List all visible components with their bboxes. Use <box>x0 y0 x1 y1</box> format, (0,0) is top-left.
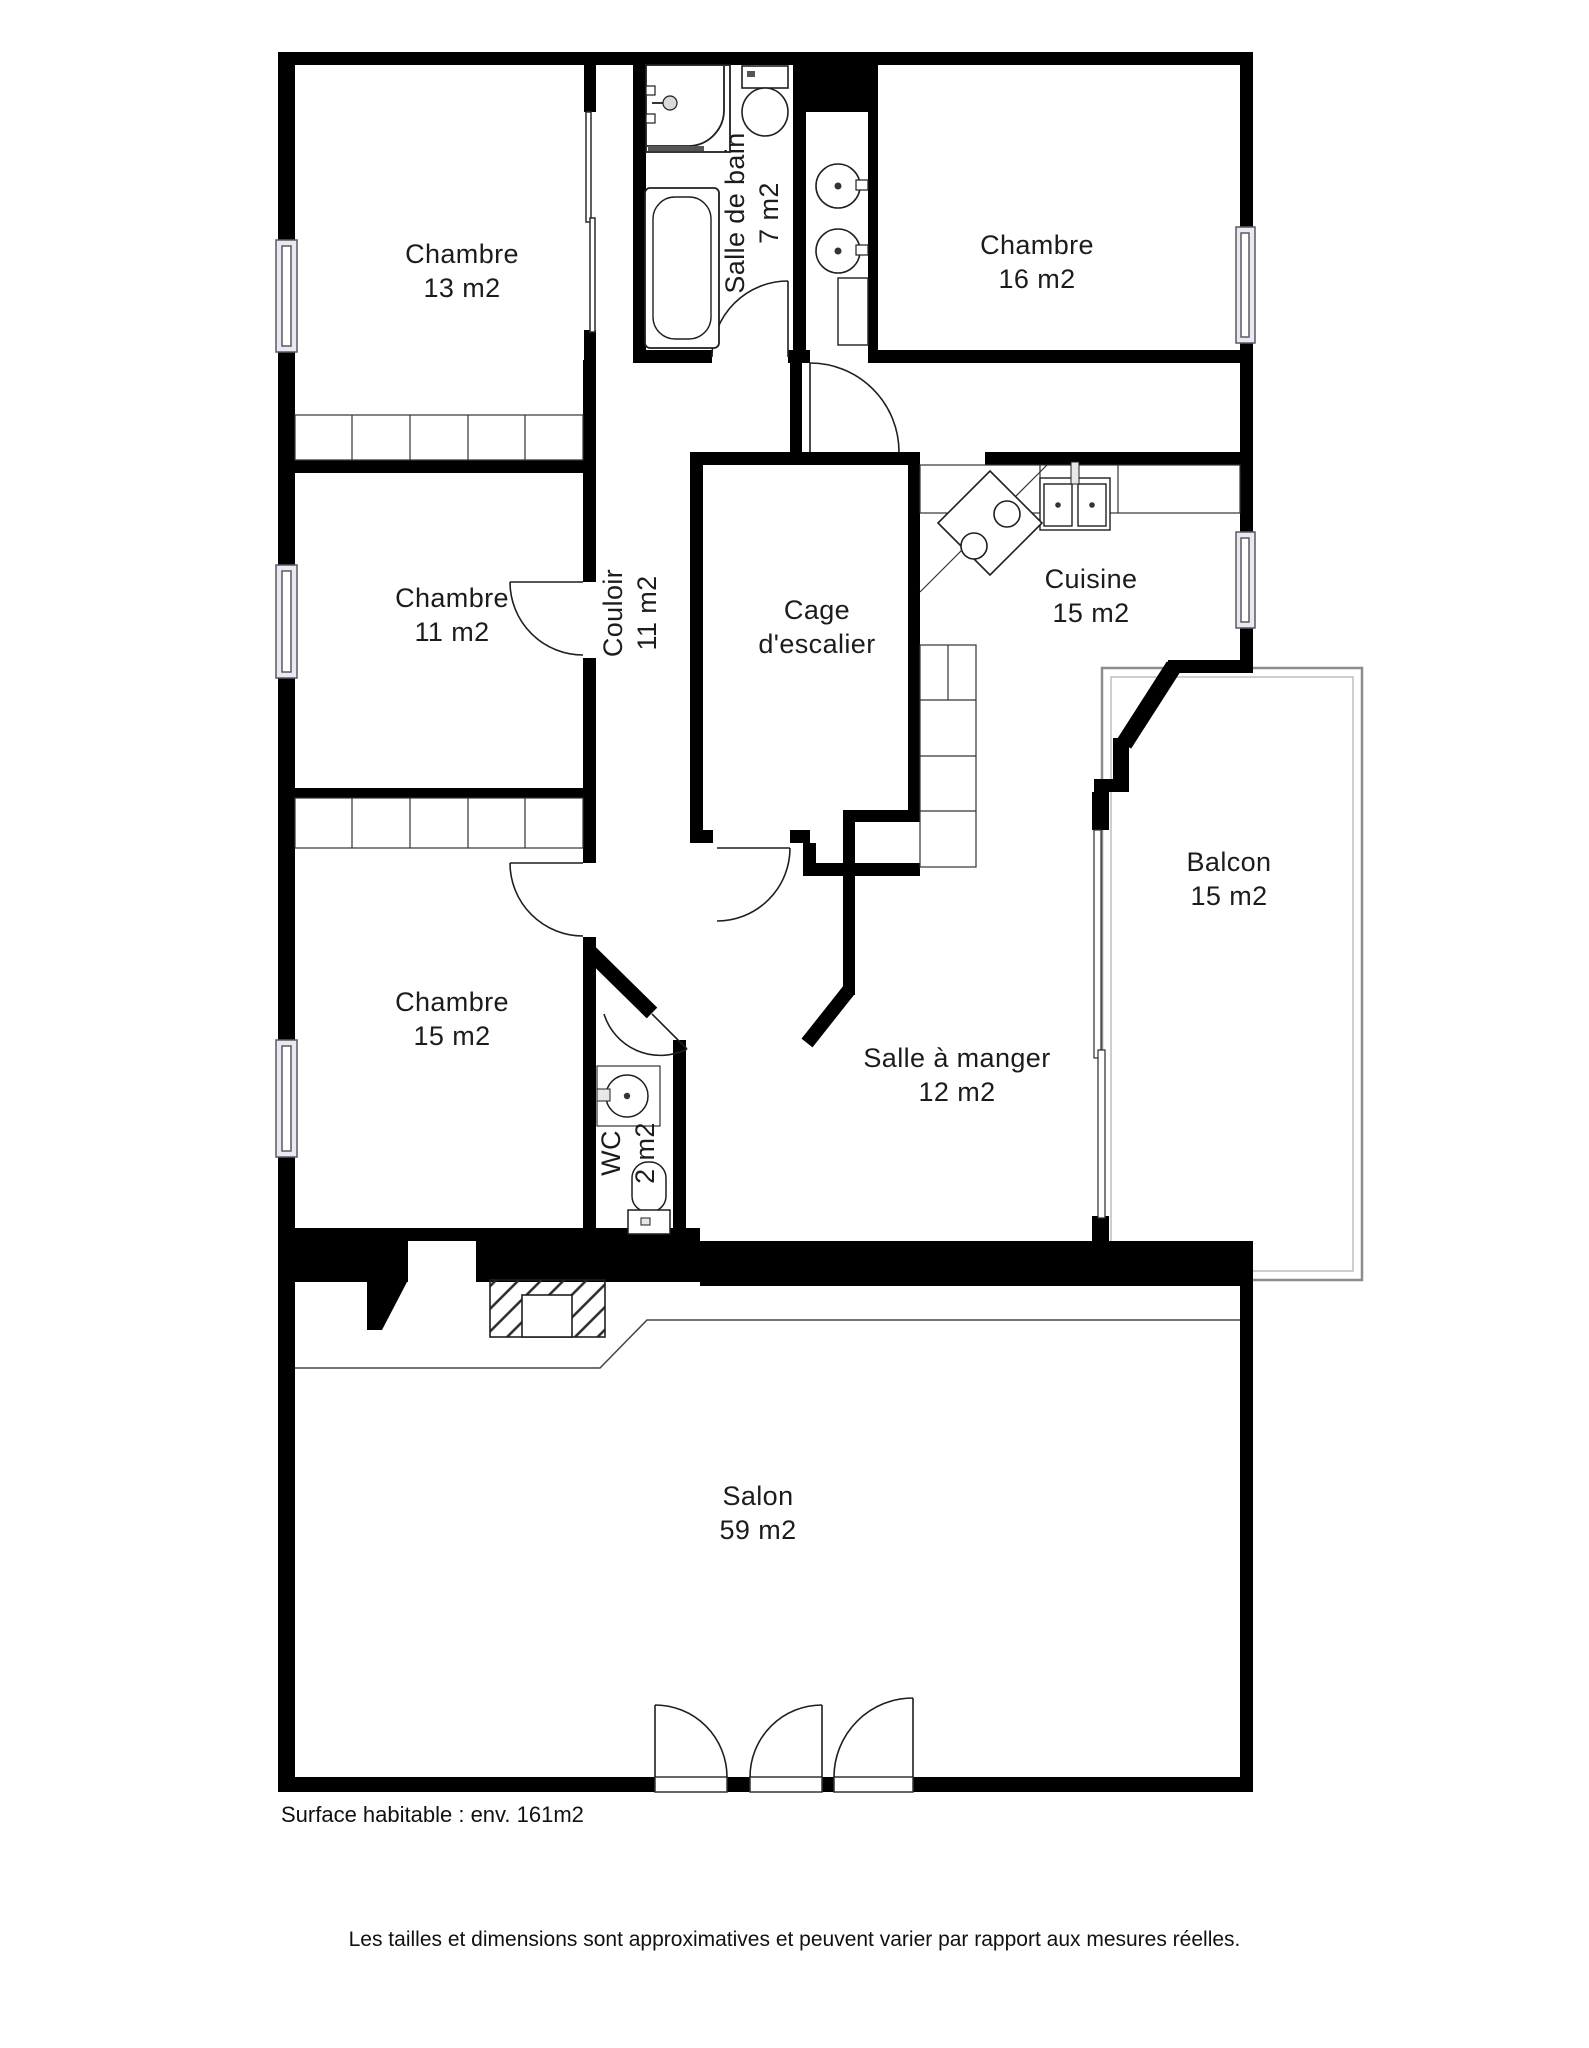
wall-cage-bottom-a <box>690 830 713 843</box>
wall-bathroom-bottom-a <box>646 350 712 363</box>
wall-cage-step-h <box>816 863 920 876</box>
wall-cage-left <box>690 452 703 843</box>
wall-bathroom-bottom-b <box>788 350 810 363</box>
door-chambre15 <box>510 863 583 936</box>
wall-chambre16-bottom <box>878 350 1240 363</box>
room-name: Chambre <box>405 237 519 271</box>
wall-bathroom-left <box>633 52 646 363</box>
door-basin-room <box>810 363 899 452</box>
room-label-chambre-13: Chambre 13 m2 <box>405 237 519 305</box>
wall-chambre11-right-b <box>583 658 596 788</box>
window-chambre13 <box>276 240 297 352</box>
surface-note: Surface habitable : env. 161m2 <box>281 1802 584 1828</box>
room-label-salon: Salon 59 m2 <box>719 1479 796 1547</box>
room-name: Chambre <box>395 581 509 615</box>
room-area: 16 m2 <box>980 262 1094 296</box>
wall-chambre13-right <box>583 360 596 460</box>
door-salon-french-1 <box>655 1705 727 1777</box>
room-area: 7 m2 <box>752 132 786 293</box>
kitchen-cabinets <box>920 645 976 867</box>
closet-chambre13 <box>295 415 583 460</box>
room-name: Salle de bain <box>718 132 752 293</box>
vestibule-outline <box>295 1320 1240 1368</box>
basinroom-block <box>806 65 868 112</box>
room-label-salle-a-manger: Salle à manger 12 m2 <box>863 1041 1050 1109</box>
wall-kitchen-div-v <box>843 810 855 995</box>
wall-cage-bottom-b <box>790 830 810 843</box>
diagonal-walls <box>588 666 1174 1043</box>
wall-wedge <box>367 1282 407 1330</box>
floor-plan-page: Chambre 13 m2 Salle de bain 7 m2 Chambre… <box>0 0 1589 2048</box>
chimney <box>490 1280 605 1337</box>
wall-basinroom-right <box>868 52 878 363</box>
room-label-chambre-11: Chambre 11 m2 <box>395 581 509 649</box>
wall-cage-step-v <box>803 843 816 876</box>
window-cuisine <box>1236 532 1255 628</box>
wall-right-lower <box>1240 1286 1253 1792</box>
pocket-rail-cap-bottom <box>584 330 596 363</box>
double-washbasin <box>816 164 868 345</box>
wall-cage-right <box>908 452 920 810</box>
window-chambre15 <box>276 1040 297 1157</box>
room-label-balcon: Balcon 15 m2 <box>1187 845 1272 913</box>
wall-corridor-stub <box>790 363 802 452</box>
room-area: 12 m2 <box>863 1075 1050 1109</box>
wall-salon-top-left <box>278 1228 700 1282</box>
window-chambre16 <box>1236 227 1255 343</box>
room-area: 59 m2 <box>719 1513 796 1547</box>
salon-door-threshold-1 <box>655 1777 727 1792</box>
room-area: 11 m2 <box>395 615 509 649</box>
room-area: 15 m2 <box>395 1019 509 1053</box>
room-name: Salon <box>719 1479 796 1513</box>
wall-openings <box>408 1241 913 1792</box>
door-salon-french-2 <box>750 1705 822 1777</box>
wall-cage-kitchen-top-b <box>985 452 1240 465</box>
room-name-2: d'escalier <box>758 627 875 661</box>
wall-cage-kitchen-top-a <box>690 452 915 465</box>
wall-chambre11-right-a <box>583 460 596 582</box>
wall-wc-diagonal <box>588 950 652 1013</box>
room-label-salle-de-bain: Salle de bain 7 m2 <box>718 132 786 293</box>
room-label-chambre-15: Chambre 15 m2 <box>395 985 509 1053</box>
window-chambre11 <box>276 565 297 678</box>
room-name: Chambre <box>980 228 1094 262</box>
room-name: Chambre <box>395 985 509 1019</box>
room-area: 15 m2 <box>1187 879 1272 913</box>
wall-chambre13-bottom <box>278 460 596 473</box>
door-chambre11 <box>510 582 583 655</box>
wall-balcony-step-h <box>1094 779 1129 792</box>
salon-door-threshold-2 <box>750 1777 822 1792</box>
room-label-chambre-16: Chambre 16 m2 <box>980 228 1094 296</box>
room-area: 11 m2 <box>630 569 664 657</box>
wall-salon-top-right <box>700 1241 1253 1286</box>
wall-bathroom-right <box>793 52 806 363</box>
toilet-bathroom <box>742 66 788 136</box>
balcony-railing <box>1102 668 1362 1280</box>
room-name: WC <box>594 1122 628 1184</box>
room-label-couloir: Couloir 11 m2 <box>596 569 664 657</box>
room-label-wc: WC 2 m2 <box>594 1122 662 1184</box>
wall-top <box>278 52 1253 65</box>
bathtub <box>645 188 719 348</box>
balcony-door-post-bottom <box>1092 1216 1109 1242</box>
doors <box>510 281 913 1777</box>
wall-wc-right <box>673 1040 686 1241</box>
room-name: Salle à manger <box>863 1041 1050 1075</box>
room-name: Cage <box>758 593 875 627</box>
room-area: 15 m2 <box>1045 596 1138 630</box>
balcony-door-post-top <box>1092 792 1109 830</box>
salon-door-threshold-3 <box>834 1777 913 1792</box>
wc-washbasin <box>597 1066 660 1126</box>
salon-top-opening <box>408 1241 476 1282</box>
door-salon-french-3 <box>834 1698 913 1777</box>
disclaimer-note: Les tailles et dimensions sont approxima… <box>0 1928 1589 1952</box>
door-cage-escalier <box>717 848 790 921</box>
room-area: 13 m2 <box>405 271 519 305</box>
pocket-rail-cap-top <box>584 65 596 112</box>
room-label-cuisine: Cuisine 15 m2 <box>1045 562 1138 630</box>
room-area: 2 m2 <box>628 1122 662 1184</box>
wall-dining-diagonal <box>807 990 849 1043</box>
wall-chambre11-bottom <box>278 788 596 798</box>
balcony-sliding-door <box>1094 830 1105 1218</box>
room-name: Cuisine <box>1045 562 1138 596</box>
floor-plan-drawing <box>0 0 1589 2048</box>
room-name: Couloir <box>596 569 630 657</box>
closet-chambre15 <box>295 798 583 848</box>
room-label-cage-escalier: Cage d'escalier <box>758 593 875 661</box>
wall-chambre15-right-b <box>583 937 596 1241</box>
room-name: Balcon <box>1187 845 1272 879</box>
sliding-door-chambre13 <box>586 112 595 332</box>
wall-chambre15-right-a <box>583 798 596 863</box>
